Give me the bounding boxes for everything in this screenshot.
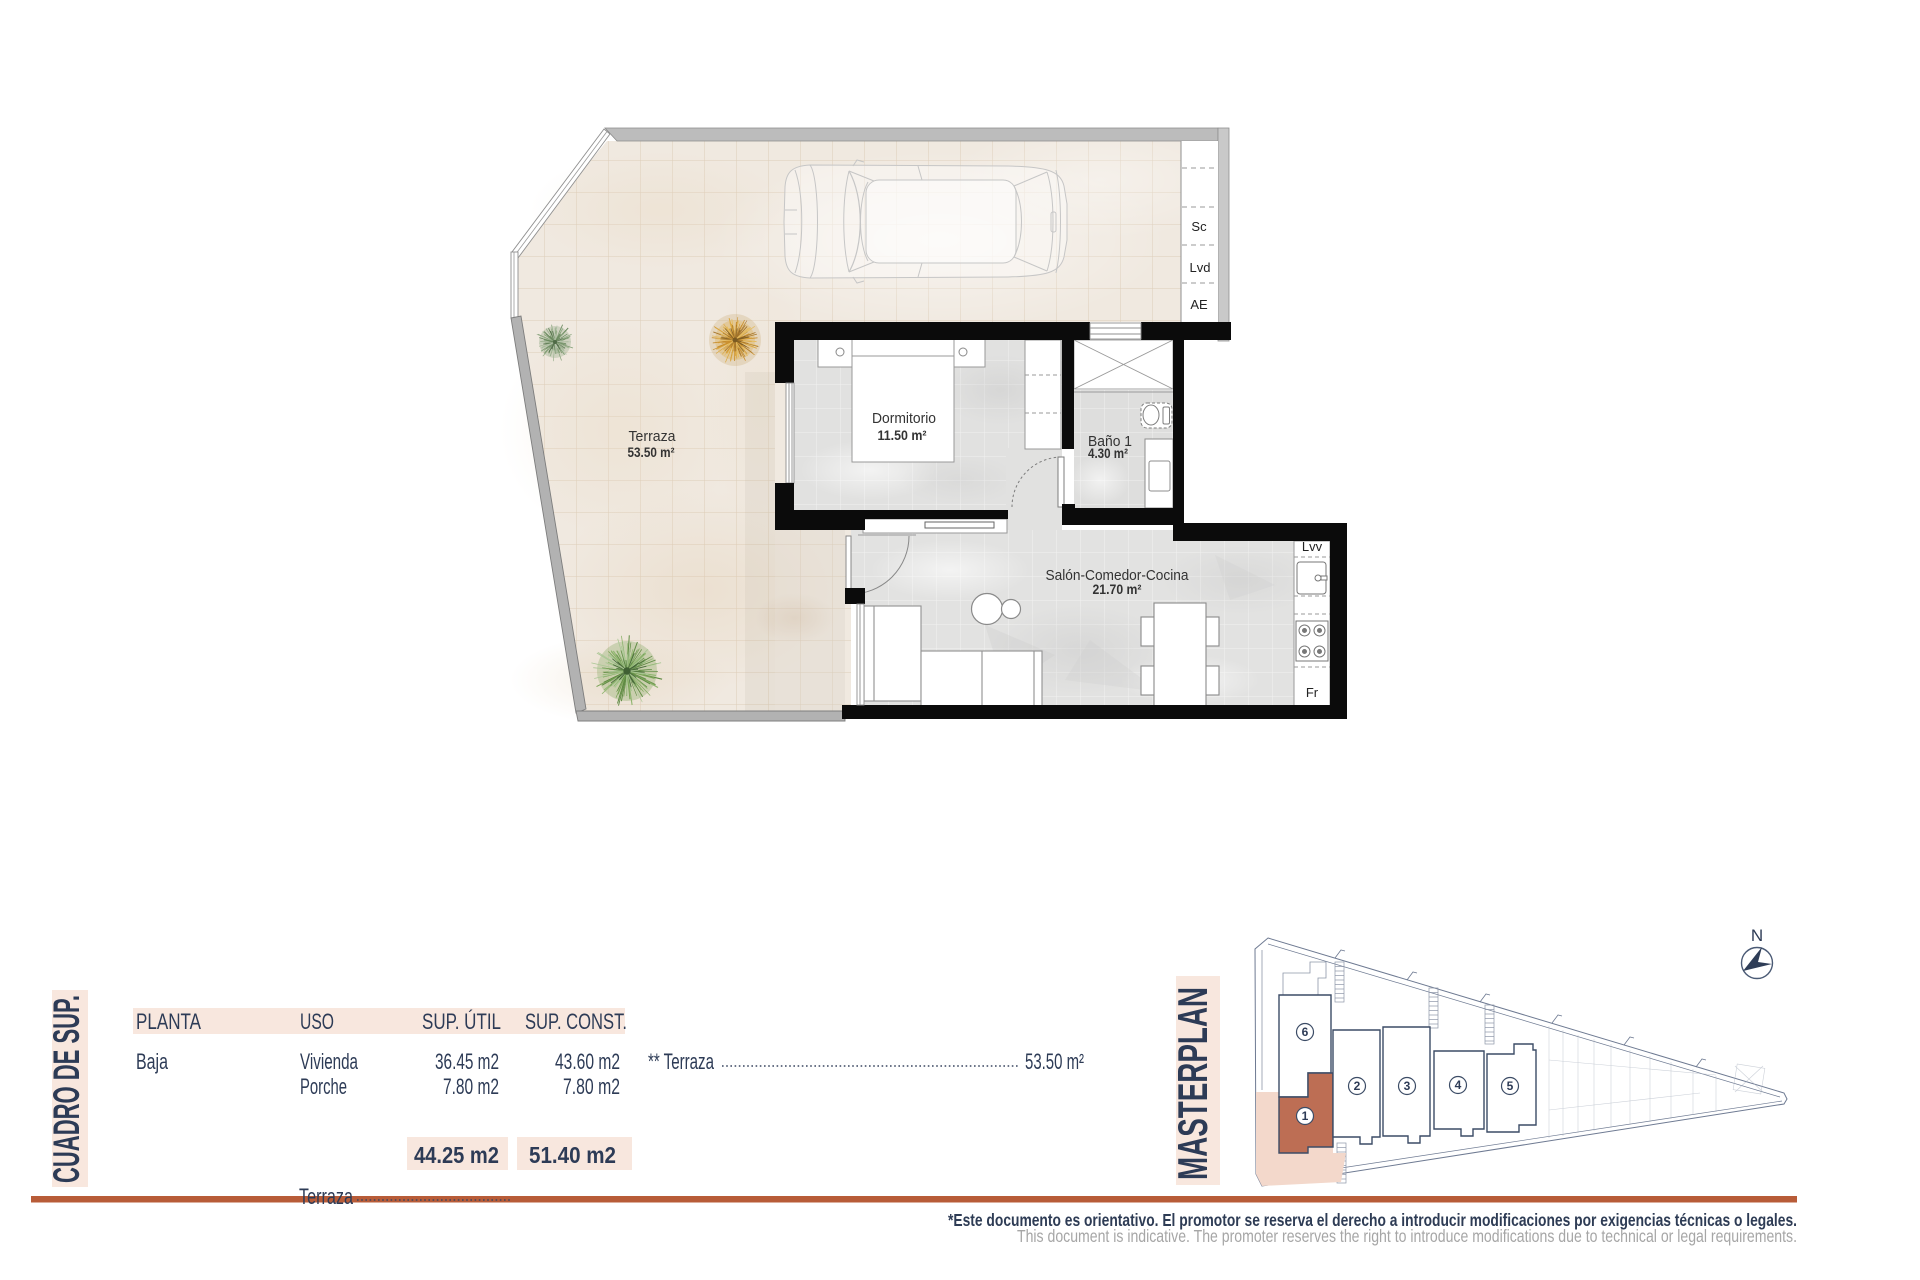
svg-text:44.25 m2: 44.25 m2 (414, 1142, 499, 1168)
svg-text:N: N (1751, 926, 1763, 945)
svg-text:21.70 m²: 21.70 m² (1093, 582, 1142, 597)
svg-text:Baja: Baja (136, 1049, 169, 1074)
svg-text:51.40 m2: 51.40 m2 (529, 1142, 616, 1168)
svg-text:Fr: Fr (1306, 685, 1319, 700)
svg-text:1: 1 (1302, 1109, 1309, 1123)
svg-text:4: 4 (1455, 1078, 1462, 1092)
svg-text:3: 3 (1404, 1079, 1411, 1093)
svg-text:2: 2 (1354, 1079, 1361, 1093)
svg-text:36.45 m2: 36.45 m2 (435, 1049, 499, 1074)
svg-text:USO: USO (300, 1009, 334, 1034)
svg-text:SUP. CONST.: SUP. CONST. (525, 1009, 627, 1034)
svg-text:PLANTA: PLANTA (136, 1009, 201, 1034)
svg-text:Vivienda: Vivienda (300, 1049, 359, 1074)
svg-text:** Terraza: ** Terraza (648, 1049, 715, 1074)
svg-text:11.50 m²: 11.50 m² (878, 428, 927, 443)
svg-text:Sc: Sc (1191, 219, 1207, 234)
svg-text:Dormitorio: Dormitorio (872, 411, 936, 427)
svg-text:43.60 m2: 43.60 m2 (555, 1049, 620, 1074)
svg-text:5: 5 (1507, 1079, 1514, 1093)
svg-text:This document is indicative. T: This document is indicative. The promote… (1017, 1226, 1797, 1246)
svg-text:53.50 m²: 53.50 m² (628, 445, 675, 460)
svg-text:Terraza: Terraza (299, 1184, 354, 1209)
svg-text:Porche: Porche (300, 1074, 347, 1099)
svg-text:7.80 m2: 7.80 m2 (443, 1074, 499, 1099)
svg-text:Lvd: Lvd (1190, 260, 1211, 275)
svg-text:MASTERPLAN: MASTERPLAN (1171, 987, 1217, 1180)
svg-text:7.80 m2: 7.80 m2 (563, 1074, 620, 1099)
svg-text:CUADRO DE SUP.: CUADRO DE SUP. (46, 995, 88, 1183)
svg-text:Lvv: Lvv (1302, 539, 1323, 554)
svg-text:4.30 m²: 4.30 m² (1088, 446, 1128, 461)
svg-text:AE: AE (1190, 297, 1208, 312)
svg-text:SUP. ÚTIL: SUP. ÚTIL (422, 1009, 501, 1034)
svg-text:6: 6 (1302, 1025, 1309, 1039)
svg-text:53.50 m²: 53.50 m² (1025, 1049, 1084, 1074)
svg-text:Terraza: Terraza (629, 429, 677, 445)
